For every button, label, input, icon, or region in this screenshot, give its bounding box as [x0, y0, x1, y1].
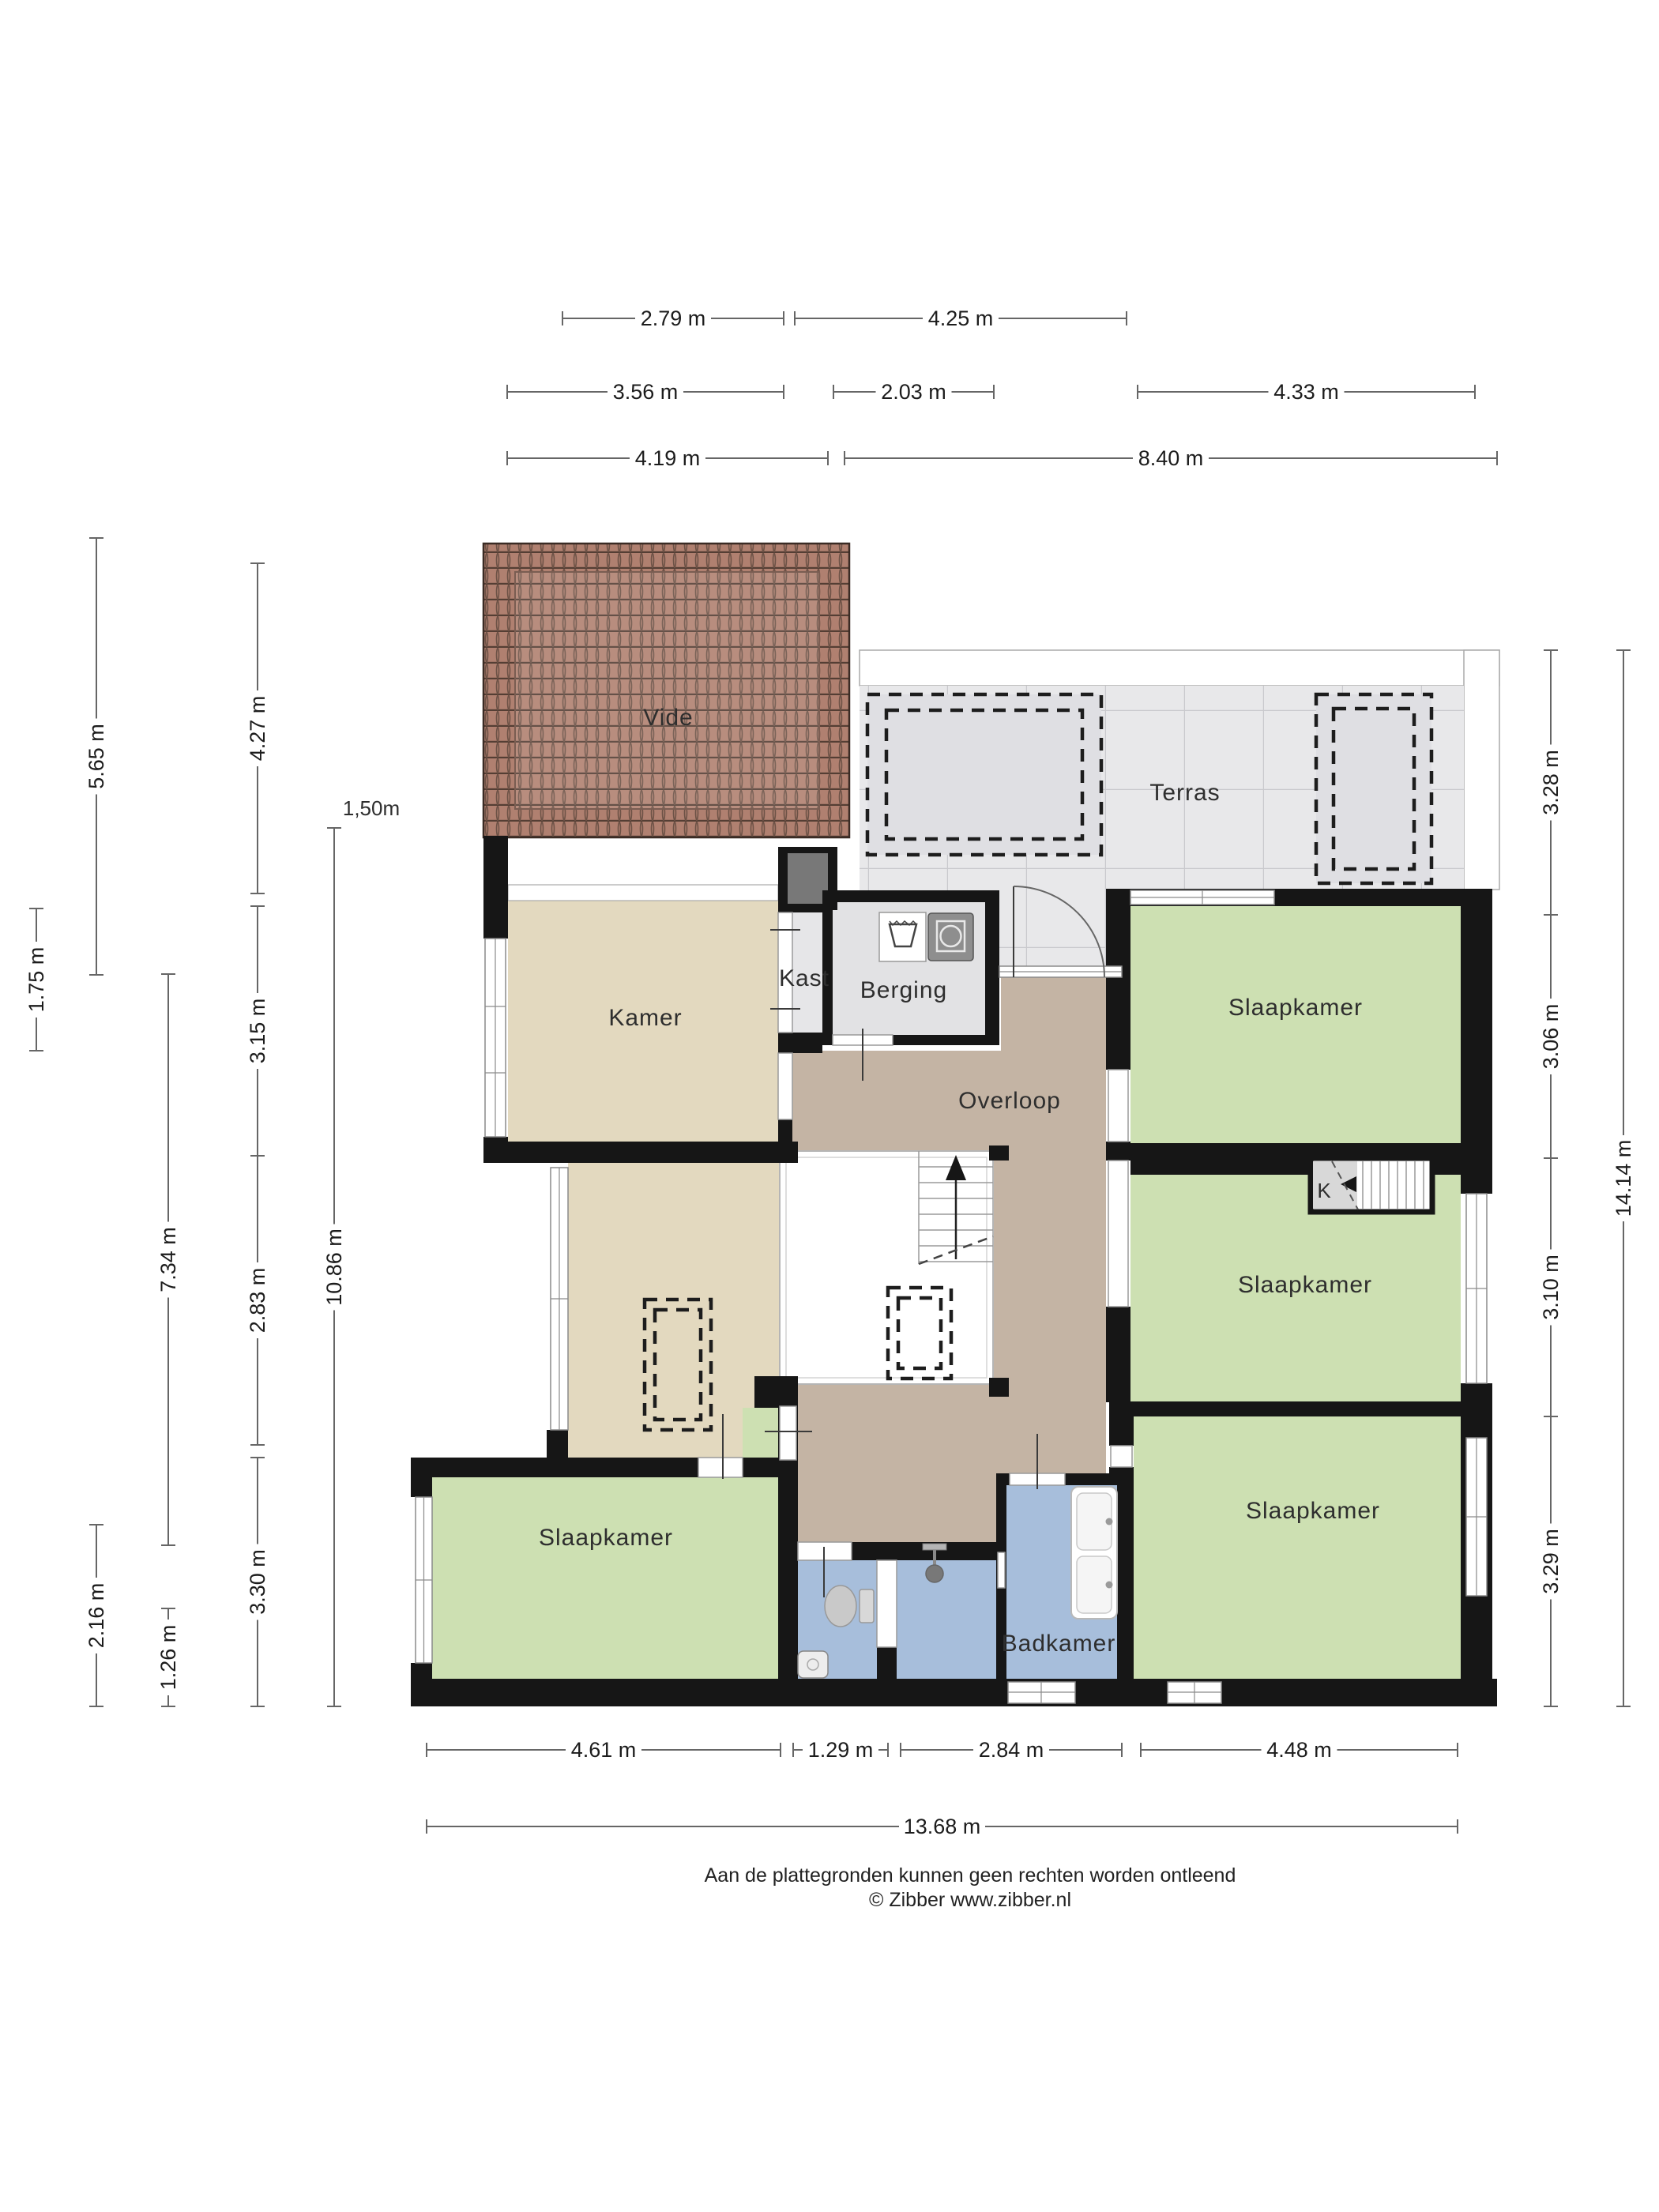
bedroom-bottomleft-floor	[432, 1477, 778, 1679]
dimension-4.19-m: 4.19 m	[507, 446, 828, 470]
label-overloop: Overloop	[958, 1088, 1061, 1114]
dim-label: 3.15 m	[246, 999, 269, 1064]
bedroom-bottomleft-door	[698, 1458, 743, 1477]
dim-label: 2.16 m	[85, 1583, 108, 1649]
dim-label: 4.25 m	[928, 307, 994, 330]
dimension-4.48-m: 4.48 m	[1141, 1738, 1458, 1762]
dimension-1.29-m: 1.29 m	[793, 1738, 888, 1762]
label-vide: Vide	[643, 705, 694, 731]
dim-label: 3.29 m	[1539, 1529, 1563, 1594]
dim-label: 3.10 m	[1539, 1255, 1563, 1320]
dimension-3.56-m: 3.56 m	[507, 380, 784, 404]
dim-label: 2.83 m	[246, 1268, 269, 1334]
dim-label: 3.06 m	[1539, 1004, 1563, 1070]
bedroom-topright-door	[1108, 1070, 1128, 1142]
dim-label: 4.19 m	[635, 446, 701, 470]
label-berging: Berging	[860, 977, 947, 1003]
dim-label: 3.56 m	[613, 380, 679, 404]
bedroom-bottomleft-door2	[780, 1406, 796, 1460]
dimension-2.03-m: 2.03 m	[833, 380, 994, 404]
label-slaapkamer-bottomright: Slaapkamer	[1246, 1498, 1380, 1524]
dimension-3.30-m: 3.30 m	[246, 1458, 269, 1706]
dimension-1.75-m: 1.75 m	[24, 908, 48, 1051]
dim-label: 7.34 m	[156, 1227, 180, 1292]
dimension-13.68-m: 13.68 m	[427, 1815, 1458, 1838]
dimension-4.61-m: 4.61 m	[427, 1738, 781, 1762]
dim-label: 2.03 m	[881, 380, 946, 404]
footer: Aan de plattegronden kunnen geen rechten…	[705, 1864, 1236, 1911]
dimension-2.84-m: 2.84 m	[901, 1738, 1122, 1762]
dim-label: 3.30 m	[246, 1549, 269, 1615]
terras-dashed-left-outer	[867, 694, 1101, 855]
washing-machine-icon	[928, 913, 973, 961]
label-height-marker: 1,50m	[343, 796, 400, 820]
washbasin-icon	[798, 1651, 828, 1678]
floorplan-canvas: Vide Terras Kamer Kast Berging Overloop …	[0, 0, 1659, 2212]
roof-inner-edge	[515, 572, 819, 809]
dim-label: 10.86 m	[322, 1228, 346, 1306]
shower-toilet-door	[877, 1560, 897, 1647]
label-kast: Kast	[779, 965, 829, 991]
dimension-2.79-m: 2.79 m	[562, 307, 784, 330]
kamer-top-band	[508, 885, 778, 901]
terras-floor-nook-grid	[999, 890, 1122, 966]
bedroom-bottomright-floor	[1134, 1416, 1461, 1679]
dim-label: 1.75 m	[24, 947, 48, 1013]
label-terras: Terras	[1149, 780, 1220, 806]
label-kamer: Kamer	[608, 1005, 682, 1031]
dimension-14.14-m: 14.14 m	[1612, 650, 1635, 1706]
dimension-10.86-m: 10.86 m	[322, 828, 346, 1706]
vanity-icon	[1071, 1487, 1117, 1619]
label-badkamer: Badkamer	[1002, 1631, 1116, 1657]
dimension-2.83-m: 2.83 m	[246, 1156, 269, 1445]
terras-railing-right	[1464, 650, 1499, 890]
dimension-3.15-m: 3.15 m	[246, 906, 269, 1156]
dim-label: 2.79 m	[641, 307, 706, 330]
bedroom-midright-door	[1108, 1161, 1128, 1307]
dimension-8.40-m: 8.40 m	[845, 446, 1497, 470]
dimension-2.16-m: 2.16 m	[85, 1525, 108, 1706]
overloop-floor-bottom	[780, 1378, 1106, 1473]
dimension-4.33-m: 4.33 m	[1138, 380, 1475, 404]
dim-label: 14.14 m	[1612, 1140, 1635, 1217]
stairwell-void	[780, 1151, 993, 1384]
overloop-floor-nook	[1001, 977, 1106, 1051]
footer-disclaimer: Aan de plattegronden kunnen geen rechten…	[705, 1864, 1236, 1887]
dim-label: 8.40 m	[1138, 446, 1204, 470]
dim-label: 5.65 m	[85, 724, 108, 789]
shower-badkamer-slit	[998, 1552, 1005, 1588]
shower-floor	[897, 1560, 996, 1679]
toilet-icon	[825, 1586, 874, 1627]
roof-vide	[483, 544, 849, 837]
overloop-floor-right	[994, 1151, 1106, 1378]
dimension-7.34-m: 7.34 m	[156, 974, 180, 1545]
dim-label: 4.61 m	[571, 1738, 637, 1762]
overloop-floor-lower	[798, 1473, 996, 1542]
dim-label: 4.33 m	[1273, 380, 1339, 404]
terras-railing-top	[860, 650, 1499, 686]
dimension-4.27-m: 4.27 m	[246, 563, 269, 893]
label-slaapkamer-bottomleft: Slaapkamer	[539, 1525, 673, 1551]
bedroom-topright-floor	[1130, 906, 1461, 1143]
label-slaapkamer-midright: Slaapkamer	[1238, 1272, 1372, 1298]
label-slaapkamer-topright: Slaapkamer	[1228, 995, 1363, 1021]
dimension-5.65-m: 5.65 m	[85, 538, 108, 975]
dim-label: 4.48 m	[1266, 1738, 1332, 1762]
dimension-3.10-m: 3.10 m	[1539, 1158, 1563, 1416]
bedroom-bottomright-door	[1111, 1446, 1132, 1467]
label-k-closet: K	[1317, 1179, 1331, 1202]
dimension-1.26-m: 1.26 m	[156, 1608, 180, 1706]
dim-label: 1.29 m	[808, 1738, 874, 1762]
dim-label: 4.27 m	[246, 696, 269, 762]
dimension-3.29-m: 3.29 m	[1539, 1416, 1563, 1706]
footer-copyright: © Zibber www.zibber.nl	[869, 1889, 1071, 1911]
dim-label: 1.26 m	[156, 1625, 180, 1691]
dimension-3.06-m: 3.06 m	[1539, 915, 1563, 1158]
kamer-right-band	[778, 1053, 792, 1119]
dim-label: 13.68 m	[904, 1815, 981, 1838]
dim-label: 2.84 m	[979, 1738, 1044, 1762]
dim-label: 3.28 m	[1539, 750, 1563, 815]
dimension-4.25-m: 4.25 m	[795, 307, 1127, 330]
chimney-inner	[788, 853, 828, 904]
dimension-3.28-m: 3.28 m	[1539, 650, 1563, 915]
laundry-sink-icon	[879, 912, 926, 961]
